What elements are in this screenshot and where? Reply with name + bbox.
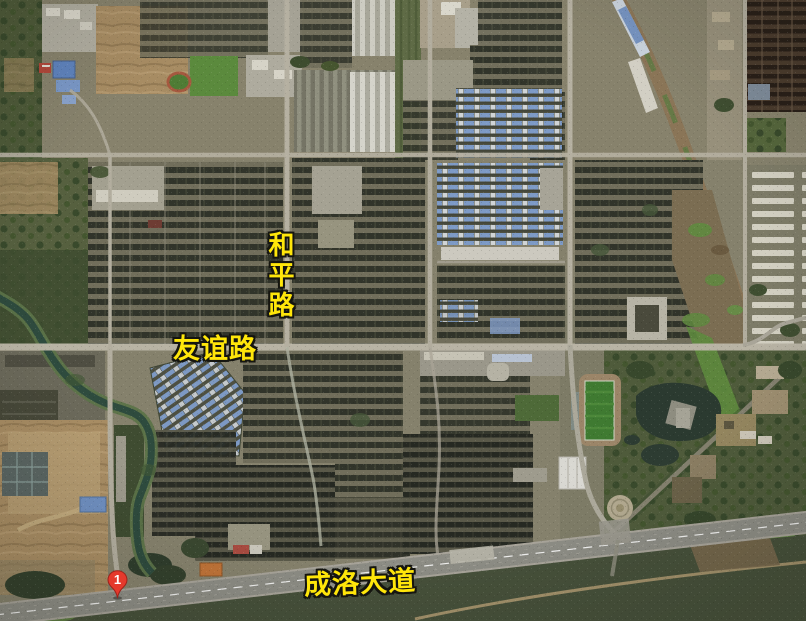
- road-label-youyi: 友谊路: [173, 327, 257, 366]
- vignette: [0, 0, 806, 621]
- marker-number: 1: [105, 573, 130, 586]
- satellite-imagery: [0, 0, 806, 621]
- marker-pin-1[interactable]: 1: [105, 570, 130, 600]
- map-canvas[interactable]: 和平路 友谊路 成洛大道 1: [0, 0, 806, 621]
- road-label-chengluo: 成洛大道: [303, 559, 417, 603]
- road-label-heping: 和平路: [267, 231, 293, 321]
